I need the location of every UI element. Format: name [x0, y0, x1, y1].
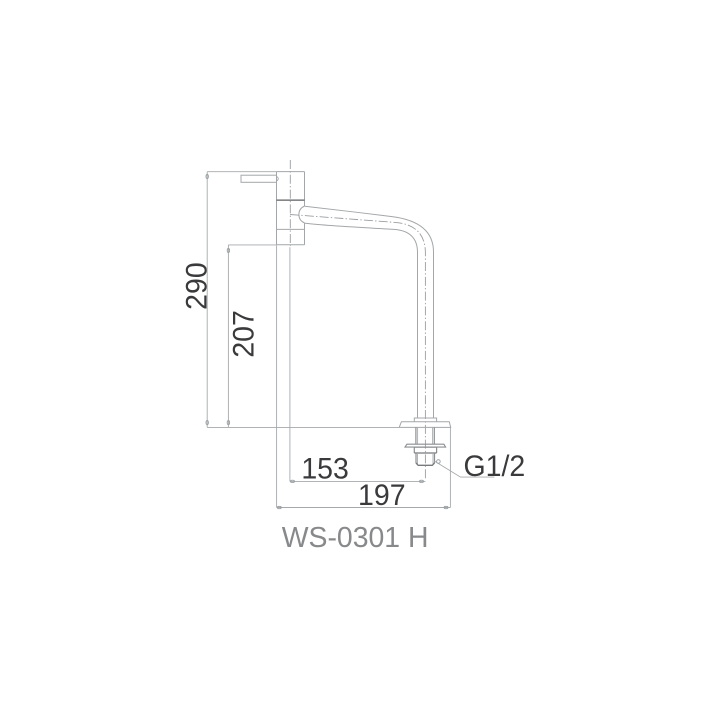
svg-text:207: 207 [228, 310, 261, 358]
svg-text:197: 197 [358, 480, 406, 513]
svg-text:G1/2: G1/2 [464, 451, 526, 484]
svg-text:WS-0301 H: WS-0301 H [282, 522, 429, 554]
svg-text:290: 290 [181, 262, 214, 310]
svg-text:153: 153 [301, 453, 349, 486]
